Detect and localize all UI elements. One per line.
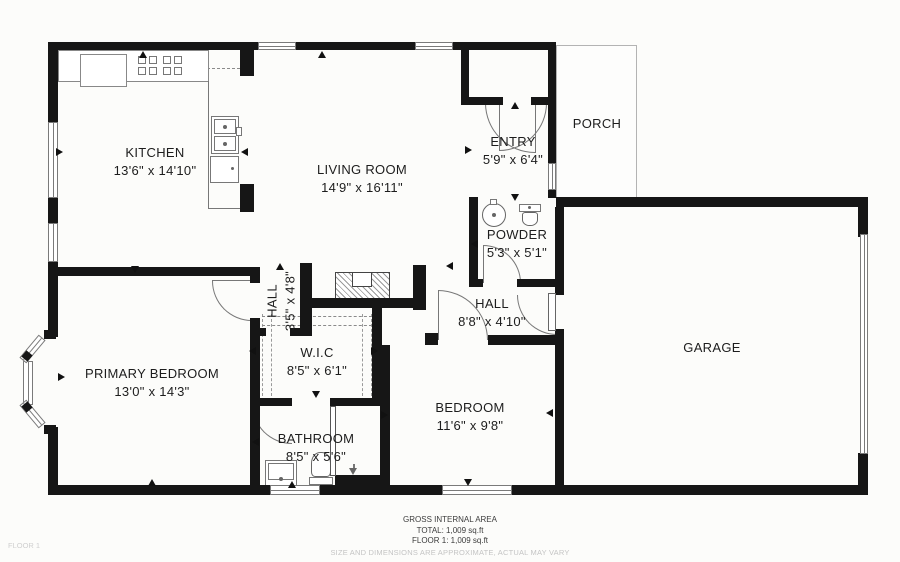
window (548, 163, 556, 190)
fireplace-notch (352, 272, 372, 287)
room-name: KITCHEN (114, 144, 197, 162)
room-name: POWDER (487, 226, 547, 244)
room-dims: 5'3" x 5'1" (487, 244, 547, 262)
faucet-icon (490, 199, 497, 205)
bay-window (23, 361, 33, 405)
wall (488, 335, 563, 345)
wall (413, 265, 426, 310)
wall (469, 279, 483, 287)
dimension-arrow-icon (148, 479, 156, 486)
room-name: PORCH (573, 115, 621, 133)
window (48, 223, 58, 262)
faucet-icon (236, 127, 242, 136)
wall (858, 197, 868, 237)
room-name: HALL (263, 271, 281, 331)
dimension-arrow-icon (131, 266, 139, 273)
wall (306, 298, 422, 308)
window (442, 485, 512, 495)
room-name: ENTRY (483, 133, 543, 151)
disclaimer: SIZE AND DIMENSIONS ARE APPROXIMATE, ACT… (330, 548, 569, 558)
wall (240, 50, 254, 76)
room-name: GARAGE (683, 339, 740, 357)
room-name: BATHROOM (278, 430, 355, 448)
dimension-arrow-icon (241, 148, 248, 156)
dimension-arrow-icon (252, 438, 259, 446)
stove-icon (138, 56, 157, 75)
wall (48, 42, 556, 50)
wall (240, 184, 254, 212)
dimension-arrow-icon (318, 51, 326, 58)
door-leaf (212, 280, 253, 281)
wall (517, 279, 556, 287)
room-label-primary-bedroom: PRIMARY BEDROOM 13'0" x 14'3" (85, 365, 219, 400)
wall (335, 475, 385, 487)
floor-area: FLOOR 1: 1,009 sq.ft (330, 536, 569, 547)
room-label-living-room: LIVING ROOM 14'9" x 16'11" (317, 161, 407, 196)
room-dims: 3'5" x 4'8" (281, 271, 299, 331)
wall (330, 398, 385, 406)
dimension-arrow-icon (312, 391, 320, 398)
dimension-arrow-icon (511, 102, 519, 109)
wall (250, 398, 292, 406)
door-arc (212, 281, 252, 321)
room-dims: 5'9" x 6'4" (483, 151, 543, 169)
room-dims: 13'0" x 14'3" (85, 383, 219, 401)
room-label-hall-small: HALL 3'5" x 4'8" (263, 271, 298, 331)
room-dims: 13'6" x 14'10" (114, 162, 197, 180)
room-label-bedroom: BEDROOM 11'6" x 9'8" (435, 399, 504, 434)
dimension-arrow-icon (464, 479, 472, 486)
window (48, 122, 58, 198)
dimension-arrow-icon (276, 263, 284, 270)
wall (461, 42, 469, 105)
room-name: HALL (458, 295, 526, 313)
footer-summary: GROSS INTERNAL AREA TOTAL: 1,009 sq.ft F… (330, 515, 569, 558)
shower-icon (349, 468, 357, 475)
room-label-powder: POWDER 5'3" x 5'1" (487, 226, 547, 261)
dimension-arrow-icon (288, 481, 296, 488)
gross-internal-area-title: GROSS INTERNAL AREA (330, 515, 569, 526)
room-name: LIVING ROOM (317, 161, 407, 179)
room-dims: 11'6" x 9'8" (435, 417, 504, 435)
wall (250, 267, 260, 283)
floor-tag: FLOOR 1 (8, 541, 40, 550)
dimension-arrow-icon (139, 51, 147, 58)
detail-line (362, 314, 363, 396)
room-label-garage: GARAGE (683, 339, 740, 357)
wall (531, 97, 556, 105)
dimension-arrow-icon (381, 411, 388, 419)
floor-plan: KITCHEN 13'6" x 14'10" LIVING ROOM 14'9"… (0, 0, 900, 562)
door-leaf (438, 290, 439, 340)
wall (469, 97, 503, 105)
room-name: BEDROOM (435, 399, 504, 417)
fridge-icon (80, 54, 127, 87)
dimension-arrow-icon (465, 146, 472, 154)
room-label-wic: W.I.C 8'5" x 6'1" (287, 344, 347, 379)
room-dims: 8'8" x 4'10" (458, 313, 526, 331)
room-dims: 8'5" x 6'1" (287, 362, 347, 380)
counter-edge (208, 208, 240, 209)
window (258, 42, 296, 50)
stove-icon (163, 56, 182, 75)
total-area: TOTAL: 1,009 sq.ft (330, 526, 569, 537)
wall (858, 453, 868, 495)
dimension-arrow-icon (511, 194, 519, 201)
room-label-entry: ENTRY 5'9" x 6'4" (483, 133, 543, 168)
room-dims: 14'9" x 16'11" (317, 179, 407, 197)
dishwasher-icon (210, 156, 239, 183)
wall (556, 197, 868, 207)
dimension-arrow-icon (446, 262, 453, 270)
wall (425, 333, 438, 345)
wall (555, 329, 564, 495)
door-leaf (548, 293, 556, 331)
dimension-arrow-icon (371, 347, 378, 355)
garage-door (860, 234, 868, 454)
room-label-kitchen: KITCHEN 13'6" x 14'10" (114, 144, 197, 179)
powder-toilet-icon (522, 212, 538, 226)
door-leaf (483, 245, 484, 283)
room-name: W.I.C (287, 344, 347, 362)
room-name: PRIMARY BEDROOM (85, 365, 219, 383)
bay-opening (48, 337, 58, 427)
room-label-porch: PORCH (573, 115, 621, 133)
dimension-arrow-icon (546, 409, 553, 417)
room-dims: 8'5" x 5'6" (278, 448, 355, 466)
dimension-arrow-icon (58, 373, 65, 381)
dimension-arrow-icon (471, 240, 478, 248)
toilet-tank (309, 477, 333, 485)
window (415, 42, 453, 50)
counter-edge (208, 81, 209, 209)
bay-window (19, 335, 45, 364)
wall (555, 207, 564, 295)
room-label-bathroom: BATHROOM 8'5" x 5'6" (278, 430, 355, 465)
room-label-hall: HALL 8'8" x 4'10" (458, 295, 526, 330)
dimension-arrow-icon (249, 347, 256, 355)
wall (250, 318, 260, 495)
dimension-arrow-icon (56, 148, 63, 156)
wall (48, 267, 258, 276)
